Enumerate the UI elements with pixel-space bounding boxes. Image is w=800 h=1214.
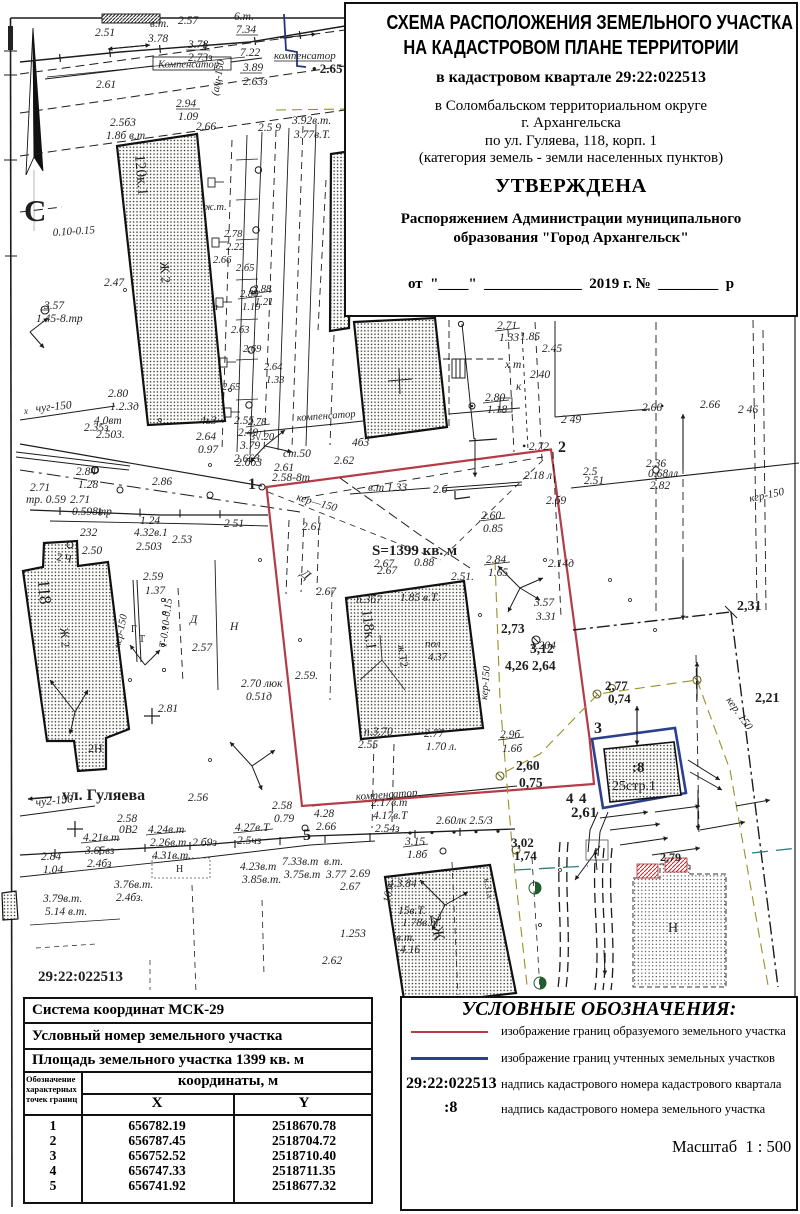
svg-text:• 2.65: • 2.65	[312, 61, 343, 76]
svg-text:2.5 9: 2.5 9	[258, 122, 281, 134]
svg-text:1.8б: 1.8б	[407, 849, 428, 861]
svg-text:2.51: 2.51	[95, 27, 115, 39]
svg-text:4.37: 4.37	[428, 651, 448, 663]
svg-text:1.18: 1.18	[487, 404, 507, 416]
svg-text:3.85в.т.: 3.85в.т.	[241, 874, 281, 886]
svg-text:4.23в.т: 4.23в.т	[240, 861, 276, 873]
svg-text:3.79: 3.79	[239, 440, 260, 452]
svg-text:ж.т.: ж.т.	[204, 202, 227, 213]
svg-text:3: 3	[594, 720, 602, 737]
svg-text:2.503.: 2.503.	[96, 429, 125, 441]
svg-text:2,31: 2,31	[737, 599, 762, 614]
svg-text:1.33: 1.33	[266, 375, 284, 386]
svg-text:3.31: 3.31	[535, 611, 556, 623]
svg-text:Ж 2: Ж 2	[157, 261, 174, 284]
svg-text:2.86: 2.86	[152, 476, 172, 488]
svg-text:4.17в.Т: 4.17в.Т	[373, 810, 409, 822]
svg-text:2.40: 2.40	[530, 369, 550, 381]
svg-text:Ж 2: Ж 2	[57, 627, 73, 648]
svg-text:2.81: 2.81	[158, 703, 178, 715]
svg-text:2.14д: 2.14д	[548, 558, 574, 570]
svg-text:тр. 0.59: тр. 0.59	[26, 494, 66, 506]
svg-text:2.84: 2.84	[41, 851, 61, 863]
svg-text:4,26 2,64: 4,26 2,64	[505, 658, 556, 673]
svg-text:2.51.: 2.51.	[451, 571, 474, 583]
svg-text:2.67: 2.67	[374, 558, 395, 570]
svg-text:2.б: 2.б	[433, 484, 449, 496]
svg-text:2.70 люк: 2.70 люк	[241, 678, 283, 690]
svg-text:в.т.: в.т.	[150, 18, 169, 30]
svg-text:2.4бз: 2.4бз	[87, 858, 112, 870]
svg-text:2.61: 2.61	[302, 521, 322, 533]
svg-text:2.56: 2.56	[188, 792, 208, 804]
svg-text:2,60: 2,60	[516, 758, 540, 773]
svg-text:2.69: 2.69	[350, 868, 370, 880]
svg-text:3.65вз: 3.65вз	[84, 845, 115, 857]
svg-text:1,74: 1,74	[514, 848, 537, 863]
svg-text:2.5чз: 2.5чз	[237, 835, 262, 847]
svg-text:2Н: 2Н	[88, 741, 103, 755]
svg-text:2.22: 2.22	[226, 242, 245, 253]
svg-text:2.66: 2.66	[316, 821, 336, 833]
svg-text:2.62: 2.62	[322, 955, 342, 967]
svg-text:4.16: 4.16	[400, 944, 420, 956]
svg-text:2.66: 2.66	[700, 399, 720, 411]
svg-text:2.45: 2.45	[542, 343, 562, 355]
svg-text:2,21: 2,21	[755, 691, 780, 706]
svg-text:п.3.70: п.3.70	[364, 726, 393, 738]
svg-text:в.т.: в.т.	[396, 932, 415, 944]
svg-text:Н: Н	[176, 864, 183, 875]
svg-text:Г: Г	[131, 624, 137, 635]
svg-text:пол: пол	[425, 638, 441, 650]
svg-text:3.76в.т.: 3.76в.т.	[113, 879, 153, 891]
svg-text:•: •	[660, 401, 664, 413]
svg-text:1.24: 1.24	[140, 515, 160, 527]
svg-text:2.54з: 2.54з	[375, 823, 400, 835]
svg-text:2.53: 2.53	[172, 534, 192, 546]
svg-text:2.94: 2.94	[176, 98, 196, 110]
svg-text:Компенсатор: Компенсатор	[157, 60, 219, 71]
svg-text:• 2.72: • 2.72	[522, 441, 549, 453]
svg-text:2.б3: 2.б3	[231, 325, 249, 336]
svg-text:2.77: 2.77	[424, 728, 445, 740]
svg-text:1.6б: 1.6б	[502, 743, 523, 755]
svg-text:4ь3: 4ь3	[200, 415, 217, 427]
svg-text:1.85: 1.85	[520, 331, 540, 343]
svg-text:п.3б7: п.3б7	[356, 594, 383, 606]
svg-text:1.70 л.: 1.70 л.	[426, 741, 457, 753]
svg-text:3.92в.т.: 3.92в.т.	[291, 115, 331, 127]
svg-text:2.б9: 2.б9	[546, 495, 566, 507]
svg-text:4.28: 4.28	[314, 808, 334, 820]
svg-text:2.63з: 2.63з	[243, 76, 268, 88]
svg-text:0,75: 0,75	[519, 775, 543, 790]
svg-text:0.88: 0.88	[414, 557, 434, 569]
svg-text:2.51: 2.51	[584, 475, 604, 487]
svg-text:0.51д: 0.51д	[246, 691, 272, 703]
svg-text:Н: Н	[668, 921, 678, 936]
svg-text:2.71: 2.71	[70, 494, 90, 506]
svg-text:0.598тр: 0.598тр	[72, 506, 112, 518]
svg-text:0.85: 0.85	[483, 523, 503, 535]
svg-text:1.8б в.т: 1.8б в.т	[106, 130, 145, 142]
svg-text:2 46: 2 46	[738, 404, 758, 416]
svg-text:3.57: 3.57	[43, 300, 65, 312]
svg-text:ст.50: ст.50	[283, 448, 311, 460]
svg-text:3.77: 3.77	[325, 869, 347, 881]
svg-text:3.79в.т.: 3.79в.т.	[42, 893, 82, 905]
svg-text:2.66: 2.66	[213, 255, 232, 266]
svg-text:2.64: 2.64	[196, 431, 216, 443]
svg-text:1.04: 1.04	[43, 864, 63, 876]
svg-text:2.59.: 2.59.	[295, 670, 318, 682]
svg-text:2.47: 2.47	[104, 277, 125, 289]
svg-text:в.т 1.33: в.т 1.33	[368, 482, 407, 494]
svg-text:2.бб3: 2.бб3	[236, 457, 262, 469]
svg-text:2.57: 2.57	[178, 15, 199, 27]
svg-text:2,73: 2,73	[501, 621, 525, 636]
svg-text:2.62: 2.62	[334, 455, 354, 467]
svg-text:1: 1	[248, 476, 256, 493]
svg-text:2.55: 2.55	[358, 739, 378, 751]
svg-text:2.59: 2.59	[143, 571, 163, 583]
svg-text:1.33: 1.33	[499, 332, 519, 344]
svg-text:х т: х т	[504, 359, 521, 371]
svg-text:2.71: 2.71	[30, 482, 50, 494]
svg-text:1.85 в.Т.: 1.85 в.Т.	[400, 592, 439, 604]
svg-text:3.75в.т: 3.75в.т	[283, 869, 320, 881]
svg-text:2.18 л: 2.18 л	[524, 470, 552, 482]
svg-text:2.4бз.: 2.4бз.	[116, 892, 143, 904]
svg-text:3.78: 3.78	[187, 39, 208, 51]
svg-text:2.78: 2.78	[224, 229, 243, 240]
svg-text:1.253: 1.253	[340, 928, 366, 940]
svg-text::8: :8	[632, 760, 645, 776]
svg-text:4.32в.1: 4.32в.1	[134, 527, 168, 539]
svg-text:4.31в.т.: 4.31в.т.	[152, 850, 191, 862]
svg-text:0.68лл: 0.68лл	[648, 468, 678, 480]
svg-text:3.78: 3.78	[147, 33, 168, 45]
svg-text:25стр.1: 25стр.1	[612, 779, 656, 794]
svg-text:2.57: 2.57	[192, 642, 213, 654]
svg-text:0.97: 0.97	[198, 444, 219, 456]
svg-text:2: 2	[558, 439, 566, 456]
svg-text:2.55: 2.55	[234, 415, 254, 427]
svg-text:3.57: 3.57	[533, 597, 555, 609]
svg-text:7.22: 7.22	[240, 47, 260, 59]
svg-text:2.49: 2.49	[238, 427, 258, 439]
svg-text:2.26в.т. 2.б9з: 2.26в.т. 2.б9з	[150, 837, 217, 849]
svg-text:2,61: 2,61	[571, 805, 597, 821]
svg-text:к: к	[516, 381, 522, 393]
svg-text:118: 118	[34, 579, 55, 605]
svg-text:3.77в.Т.: 3.77в.Т.	[293, 129, 331, 141]
svg-text:232: 232	[80, 527, 98, 539]
svg-text:6.т.: 6.т.	[234, 11, 254, 23]
svg-text:2.50: 2.50	[82, 545, 102, 557]
svg-text:х: х	[23, 406, 28, 416]
svg-text:Н: Н	[229, 621, 239, 633]
svg-text:7.34: 7.34	[236, 24, 256, 36]
svg-text:1.21: 1.21	[255, 297, 273, 308]
svg-text:1.65: 1.65	[488, 567, 508, 579]
svg-text:29:22:022513: 29:22:022513	[38, 969, 123, 985]
svg-text:2.58: 2.58	[272, 800, 292, 812]
svg-text:0,74: 0,74	[608, 691, 631, 706]
svg-text:2 51: 2 51	[224, 518, 244, 530]
svg-text:в.т.: в.т.	[324, 856, 343, 868]
svg-text:4б3: 4б3	[352, 437, 370, 449]
svg-text:2.66: 2.66	[196, 121, 216, 133]
svg-text:2.б5: 2.б5	[236, 263, 254, 274]
svg-text:2 49: 2 49	[561, 414, 581, 426]
svg-text:ул. Гуляева: ул. Гуляева	[62, 787, 145, 804]
svg-text:2.80: 2.80	[108, 388, 128, 400]
svg-text:1.2.3д: 1.2.3д	[110, 401, 139, 413]
svg-text:1.78в.т.: 1.78в.т.	[402, 917, 441, 929]
svg-text:2.58-8т: 2.58-8т	[272, 472, 310, 484]
svg-text:1.28: 1.28	[78, 479, 98, 491]
svg-text:Д: Д	[189, 614, 198, 626]
svg-text:2,79: 2,79	[660, 850, 681, 864]
svg-text:5.14 в.т.: 5.14 в.т.	[45, 906, 87, 918]
svg-text:0В2: 0В2	[119, 824, 138, 836]
svg-text:4,0вт: 4,0вт	[94, 415, 122, 427]
svg-text:2.67: 2.67	[316, 586, 337, 598]
svg-text:2.82: 2.82	[650, 480, 670, 492]
svg-text:1.45-8.тр: 1.45-8.тр	[36, 313, 83, 325]
svg-text:2.503: 2.503	[136, 541, 162, 553]
svg-text:2.67: 2.67	[340, 881, 361, 893]
svg-text:15в.Т.: 15в.Т.	[398, 905, 426, 917]
svg-text:0.79: 0.79	[274, 813, 294, 825]
svg-text:1.37: 1.37	[145, 585, 166, 597]
svg-text:Т: Т	[139, 634, 145, 645]
svg-text:2.5б3: 2.5б3	[110, 117, 136, 129]
svg-text:2.61: 2.61	[96, 79, 116, 91]
svg-text:7.33в.т: 7.33в.т	[282, 856, 318, 868]
svg-text:2.60лк 2.5/3: 2.60лк 2.5/3	[436, 815, 493, 827]
svg-text:2.17в.т: 2.17в.т	[371, 797, 407, 809]
svg-text:3.89: 3.89	[242, 62, 263, 74]
